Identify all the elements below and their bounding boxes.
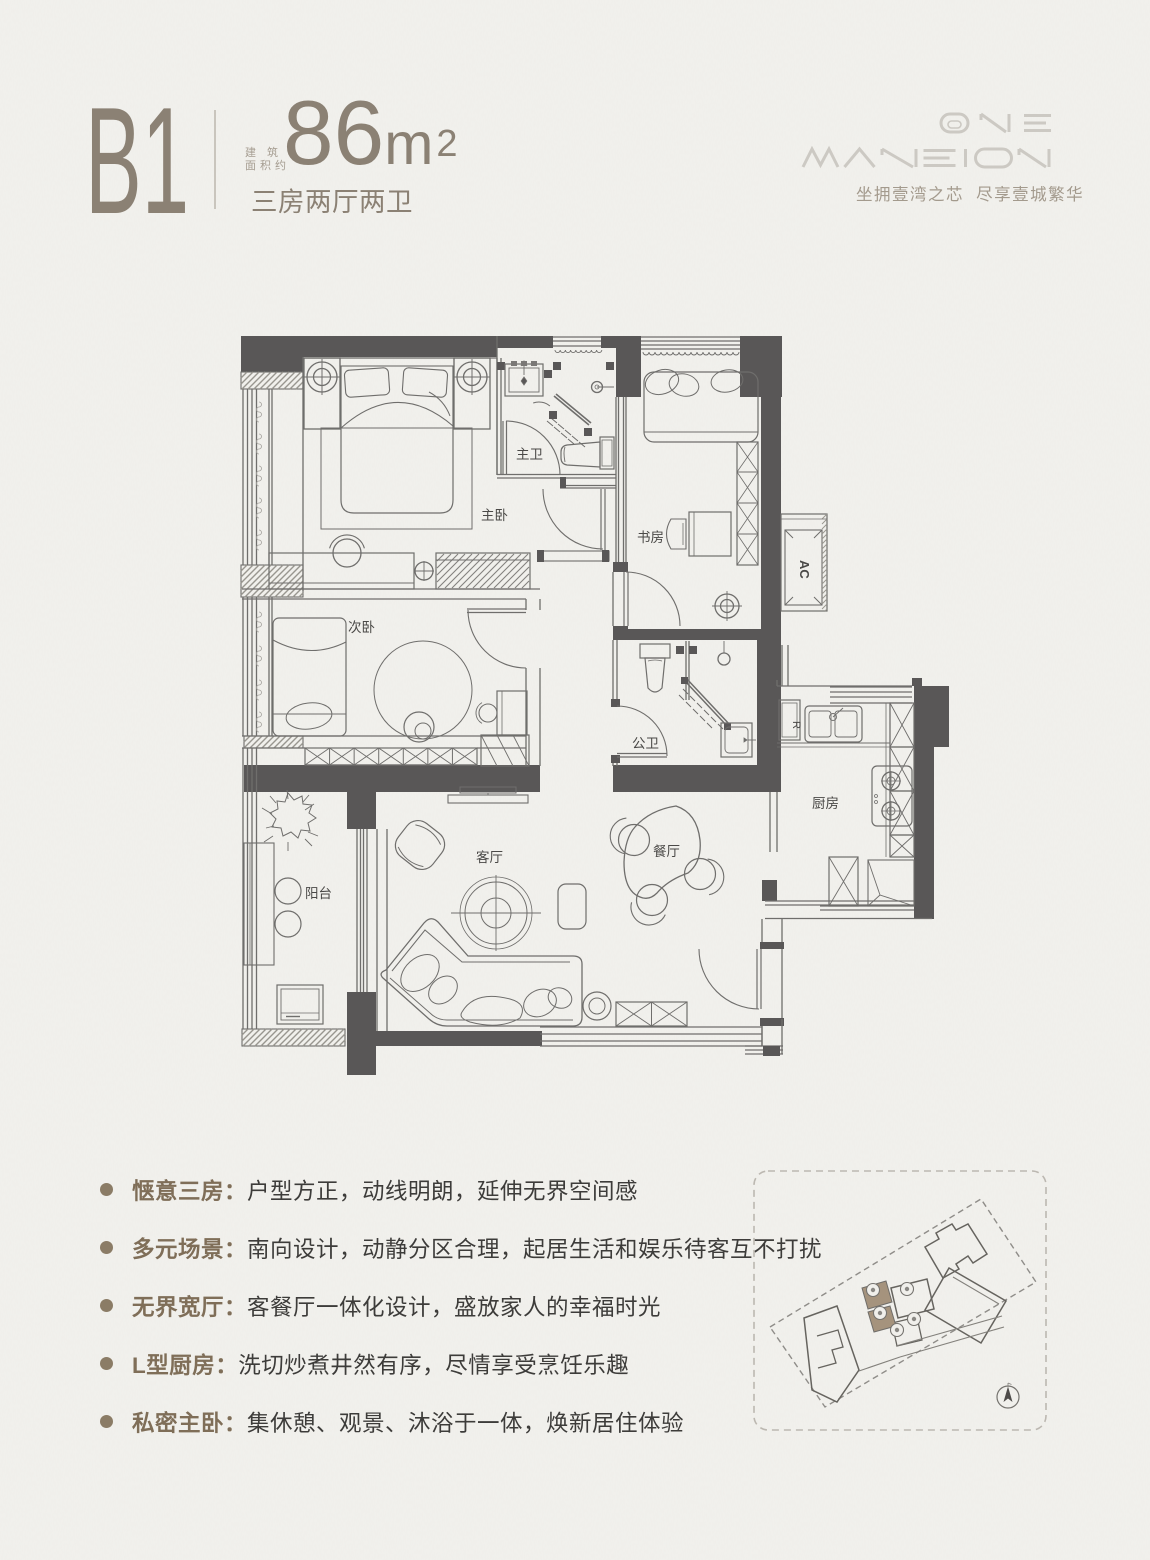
svg-text:餐厅: 餐厅 [653,844,680,859]
svg-text:主卧: 主卧 [481,508,508,523]
svg-text:AC: AC [797,560,812,579]
svg-text:书房: 书房 [637,530,664,545]
svg-text:次卧: 次卧 [348,620,375,635]
svg-text:公卫: 公卫 [632,736,659,751]
svg-text:客厅: 客厅 [476,849,503,865]
svg-text:厨房: 厨房 [812,796,839,811]
svg-text:R: R [790,721,802,729]
svg-text:阳台: 阳台 [305,886,332,901]
svg-text:主卫: 主卫 [516,447,543,462]
